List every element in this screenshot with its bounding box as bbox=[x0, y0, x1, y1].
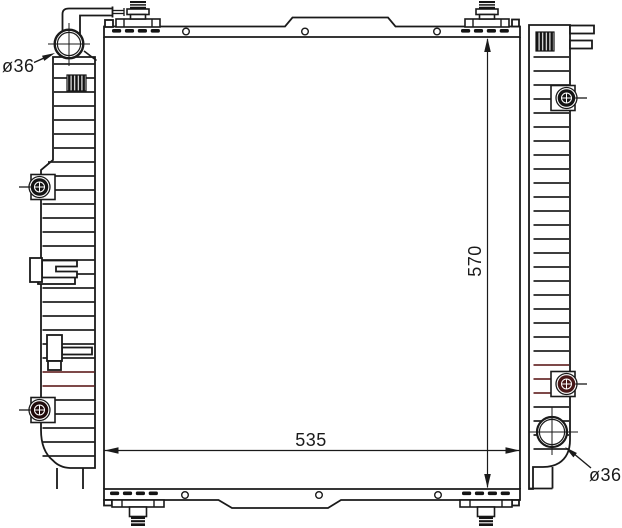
rail-slot bbox=[487, 29, 496, 33]
pin-base bbox=[116, 19, 160, 27]
pin-collar bbox=[130, 507, 147, 517]
mounting-pin-bottom bbox=[112, 500, 164, 526]
pin-neck bbox=[480, 15, 495, 20]
pipe-fitting bbox=[19, 175, 55, 200]
right-tank-hatch-block bbox=[536, 32, 554, 51]
bottom-rail-right-step bbox=[512, 500, 519, 506]
rail-hole bbox=[435, 492, 442, 499]
callout-inlet-diameter: ø36 bbox=[2, 53, 55, 76]
rail-slot bbox=[500, 29, 509, 33]
top-rail-left-step bbox=[105, 20, 113, 27]
rail-hole bbox=[434, 28, 441, 35]
pin-tip bbox=[479, 517, 493, 527]
radiator-drawing-page: 570 535 ø36 ø36 bbox=[0, 0, 622, 528]
dimension-width-535: 535 bbox=[105, 430, 520, 454]
dimension-height-570: 570 bbox=[465, 38, 491, 488]
arrowhead-up bbox=[484, 38, 491, 52]
inlet-dia-label: ø36 bbox=[2, 56, 35, 76]
mounting-pin-bottom bbox=[460, 500, 512, 526]
pin-tip bbox=[131, 517, 145, 527]
rail-slot bbox=[125, 29, 134, 33]
top-rail-right-step bbox=[512, 20, 519, 27]
rail-hole bbox=[183, 28, 190, 35]
pin-neck bbox=[131, 15, 146, 20]
pin-base bbox=[465, 19, 509, 27]
rail-slots bbox=[110, 29, 510, 495]
rail-slot bbox=[112, 29, 121, 33]
mounting-pin-top bbox=[465, 1, 509, 27]
bottom-rail-left-step bbox=[104, 500, 112, 506]
rail-slot bbox=[151, 29, 160, 33]
pin-tip bbox=[130, 1, 146, 9]
pin-base bbox=[112, 500, 164, 507]
right-tank-top-tabs bbox=[570, 26, 594, 49]
rail-slot bbox=[475, 492, 484, 496]
width-dim-label: 535 bbox=[295, 430, 327, 450]
arrowhead-down bbox=[484, 474, 491, 488]
rail-hole bbox=[316, 492, 323, 499]
pin-tip bbox=[479, 1, 495, 9]
pin-collar bbox=[127, 9, 149, 15]
left-tank-hatch-block bbox=[67, 75, 86, 91]
pipe-fitting bbox=[19, 398, 55, 423]
pin-collar bbox=[476, 9, 498, 15]
pipe-fitting bbox=[551, 86, 587, 111]
rail-slot bbox=[501, 492, 510, 496]
rail-slot bbox=[123, 492, 132, 496]
tank-feet bbox=[57, 467, 553, 489]
callout-outlet-diameter: ø36 bbox=[565, 447, 622, 485]
rail-slot bbox=[149, 492, 158, 496]
rail-slot bbox=[461, 29, 470, 33]
bottom-rail bbox=[104, 489, 520, 508]
pipe-fitting bbox=[551, 372, 587, 397]
arrowhead-left bbox=[105, 447, 119, 454]
rail-slot bbox=[110, 492, 119, 496]
rail-hole bbox=[302, 28, 309, 35]
rail-slot bbox=[462, 492, 471, 496]
pin-base bbox=[460, 500, 512, 507]
rail-slot bbox=[136, 492, 145, 496]
rail-slot bbox=[138, 29, 147, 33]
outlet-dia-label: ø36 bbox=[589, 465, 622, 485]
rail-hole bbox=[182, 492, 189, 499]
core-flanges bbox=[104, 37, 520, 489]
left-tank-bracket-upper bbox=[30, 258, 77, 284]
top-rail bbox=[104, 18, 520, 38]
rail-slot bbox=[488, 492, 497, 496]
rail-slot bbox=[474, 29, 483, 33]
height-dim-label: 570 bbox=[465, 245, 485, 277]
radiator-technical-drawing: 570 535 ø36 ø36 bbox=[0, 0, 622, 528]
arrowhead-right bbox=[506, 447, 520, 454]
rail-holes bbox=[182, 28, 442, 498]
pin-collar bbox=[478, 507, 495, 517]
